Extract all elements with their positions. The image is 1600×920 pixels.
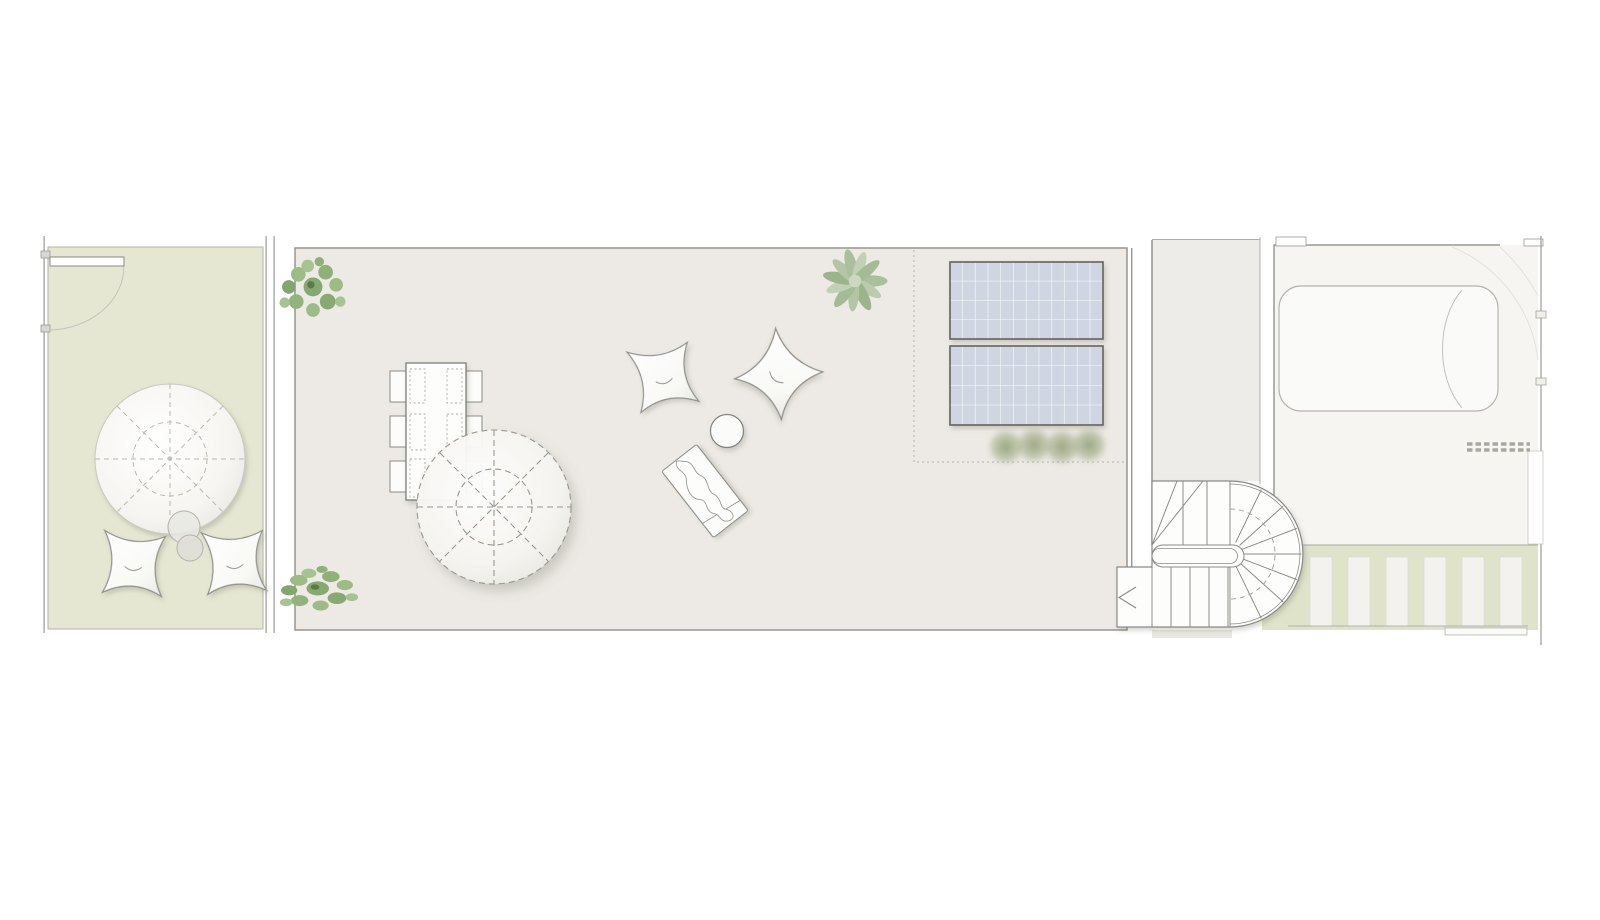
door-leaf xyxy=(50,257,124,266)
left-garden-section xyxy=(41,236,268,633)
bottom-wall-segment xyxy=(1445,628,1527,635)
garden-side-table-small xyxy=(177,535,203,561)
floor-plan-page xyxy=(0,0,1600,920)
neighbor-plot-section xyxy=(1262,236,1546,645)
main-terrace-section xyxy=(274,248,1132,630)
door-jamb-bottom xyxy=(41,325,50,332)
car-body xyxy=(1279,286,1498,411)
corridor-floor xyxy=(1152,240,1260,481)
terrace-parasol xyxy=(417,430,571,584)
corridor-bottom-wall xyxy=(1152,630,1232,638)
staircase xyxy=(1117,481,1303,627)
wall-segment-top-right xyxy=(1524,239,1543,246)
garden-outer-wall xyxy=(44,236,45,633)
wall-return-top-left xyxy=(1276,237,1306,246)
floor-plan-drawing xyxy=(0,0,1600,920)
garden-parasol xyxy=(95,384,245,534)
round-side-table xyxy=(711,415,744,448)
wall-tick-1 xyxy=(1536,311,1546,318)
door-jamb-top xyxy=(41,251,50,258)
wall-tick-2 xyxy=(1536,378,1546,385)
terrace-right-wall xyxy=(1131,248,1132,567)
parked-car xyxy=(1279,286,1498,411)
party-wall xyxy=(266,236,275,633)
side-gate-opening xyxy=(1528,451,1543,544)
